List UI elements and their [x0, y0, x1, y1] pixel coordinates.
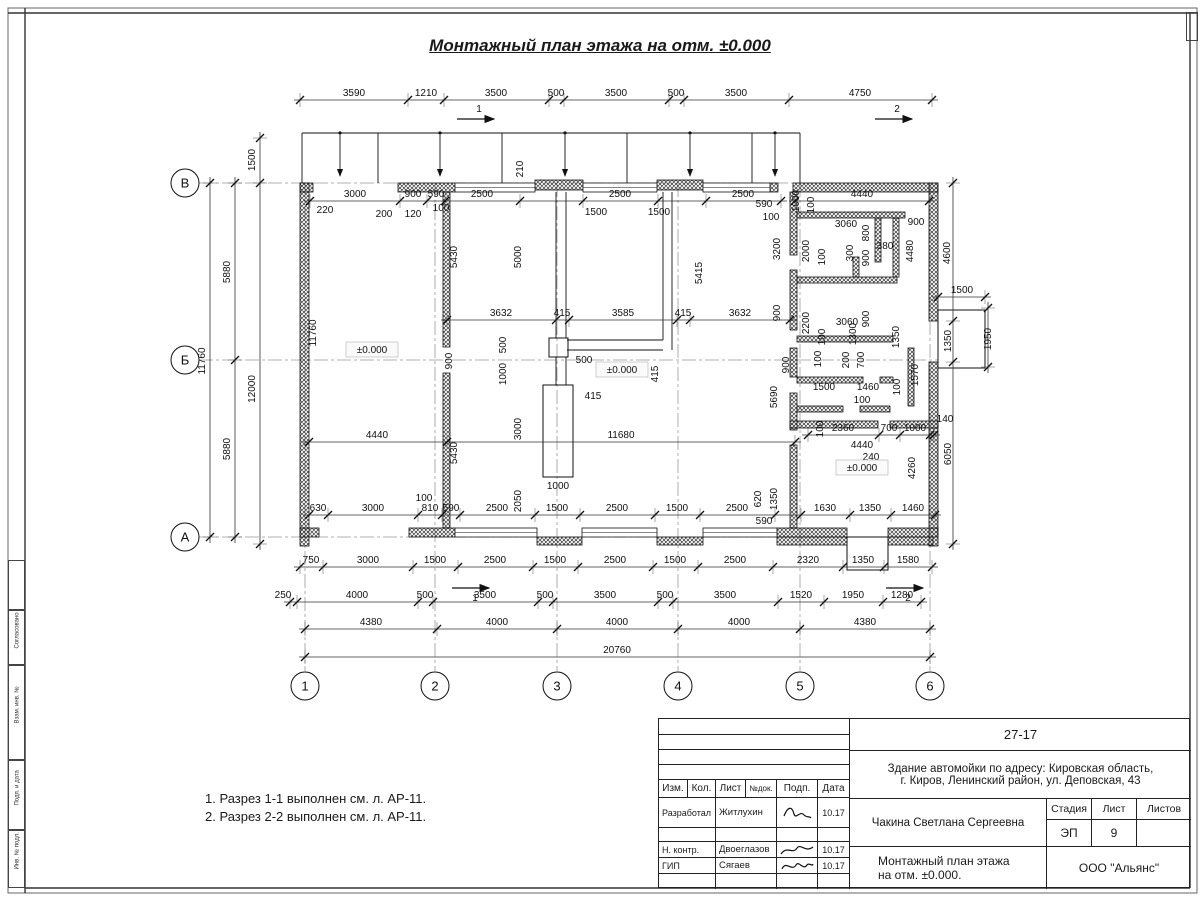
dim-label: 750	[303, 555, 320, 566]
dim-label: 3500	[474, 590, 497, 601]
tb-sheets-label: Листов	[1136, 798, 1191, 819]
axis-bubble-label: 6	[926, 679, 933, 694]
frame-strip-cell: Инв. № подл.	[8, 830, 25, 888]
dim-label: 1500	[247, 148, 258, 171]
dim-label: 11760	[308, 319, 319, 347]
elevation-label: ±0.000	[357, 345, 388, 356]
tb-company: ООО "Альянс"	[1046, 846, 1191, 889]
title-block-empty-cell	[659, 749, 849, 764]
dim-label: 20760	[603, 645, 631, 656]
dim-label: 100	[817, 248, 828, 265]
tb-col-data: Дата	[817, 779, 849, 797]
dim-label: 1520	[790, 590, 813, 601]
dim-label: 100	[813, 350, 824, 367]
dim-label: 500	[498, 336, 509, 353]
notes-block: 1. Разрез 1-1 выполнен см. л. АР-11. 2. …	[205, 790, 426, 825]
dim-label: 1630	[814, 503, 837, 514]
dim-label: 1210	[415, 88, 438, 99]
title-block-empty-cell	[817, 827, 849, 841]
dim-label: 500	[537, 590, 554, 601]
tb-drawing-name-line1: Монтажный план этажа	[878, 854, 1010, 868]
dim-label: 3632	[490, 308, 513, 319]
dim-label: 415	[554, 308, 571, 319]
tb-col-izm: Изм.	[659, 779, 687, 797]
dim-label: 500	[668, 88, 685, 99]
dim-label: 800	[861, 224, 872, 241]
dim-label: 1500	[666, 503, 689, 514]
dim-label: 415	[650, 365, 661, 382]
dim-label: 1000	[547, 481, 570, 492]
dim-label: 140	[937, 414, 954, 425]
tb-sheet-label: Лист	[1091, 798, 1136, 819]
dim-label: 1000	[904, 423, 927, 434]
drawing-sheet: 3590121035005003500500350047501212150021…	[0, 0, 1200, 900]
dim-label: 100	[763, 212, 780, 223]
tb-date: 10.17	[817, 797, 849, 827]
dim-label: 1500	[648, 207, 671, 218]
axis-bubble-label: 2	[431, 679, 438, 694]
tb-signature	[776, 797, 817, 827]
dim-label: 590	[443, 503, 460, 514]
dim-label: 500	[657, 590, 674, 601]
frame-strip-cell: Взам. инв. №	[8, 665, 25, 760]
dim-label: 4440	[366, 430, 389, 441]
dimension-labels: 3590121035005003500500350047501212150021…	[197, 88, 994, 656]
dim-label: 1500	[424, 555, 447, 566]
dim-label: 5430	[449, 441, 460, 464]
axis-bubble-label: 5	[796, 679, 803, 694]
dim-label: 2320	[797, 555, 820, 566]
dim-label: 5415	[694, 261, 705, 284]
dim-label: 2050	[513, 489, 524, 512]
dim-label: 1500	[813, 382, 836, 393]
dim-label: 5430	[449, 245, 460, 268]
tb-drawing-name: Монтажный план этажа на отм. ±0.000.	[849, 846, 1046, 889]
frame-strip-label: Взам. инв. №	[15, 708, 21, 723]
dim-label: 4480	[905, 239, 916, 262]
dim-label: 1950	[983, 327, 994, 350]
title-block-empty-cell	[776, 827, 817, 841]
dim-label: 1500	[546, 503, 569, 514]
frame-strip-cell	[8, 560, 25, 610]
dim-label: 1350	[852, 555, 875, 566]
tb-project-line1: Здание автомойки по адресу: Кировская об…	[888, 763, 1154, 775]
dim-label: 2500	[606, 503, 629, 514]
tb-doc-number: 27-17	[849, 719, 1191, 750]
dim-label: 4440	[851, 189, 874, 200]
dim-label: 900	[908, 217, 925, 228]
tb-date: 10.17	[817, 857, 849, 873]
dim-label: 4750	[849, 88, 872, 99]
dim-label: 100	[854, 395, 871, 406]
dim-label: 590	[428, 189, 445, 200]
dim-label: 1500	[585, 207, 608, 218]
dim-label: 4000	[606, 617, 629, 628]
dim-label: 3000	[357, 555, 380, 566]
title-block-empty-cell	[715, 827, 776, 841]
dim-label: 12000	[247, 375, 258, 403]
axis-bubble-label: В	[181, 176, 190, 191]
dim-label: 1500	[544, 555, 567, 566]
dim-label: 2500	[732, 189, 755, 200]
title-block: Изм. Кол. Лист №док. Подп. Дата Разработ…	[658, 718, 1190, 888]
dim-label: 900	[861, 310, 872, 327]
dim-label: 2500	[484, 555, 507, 566]
dim-label: 630	[310, 503, 327, 514]
dim-label: 1580	[897, 555, 920, 566]
dim-label: 6050	[943, 442, 954, 465]
dim-label: 3590	[343, 88, 366, 99]
dim-label: 4000	[728, 617, 751, 628]
dim-label: 200	[841, 351, 852, 368]
dim-label: 4600	[942, 241, 953, 264]
dim-label: 500	[417, 590, 434, 601]
dim-label: 2500	[726, 503, 749, 514]
dim-label: 700	[881, 423, 898, 434]
tb-sheets-value	[1136, 819, 1191, 846]
axis-bubbles: ВБА123456	[171, 169, 944, 700]
note-line: 2. Разрез 2-2 выполнен см. л. АР-11.	[205, 808, 426, 826]
dim-label: 1950	[842, 590, 865, 601]
dim-label: 100	[815, 420, 826, 437]
dim-label: 500	[548, 88, 565, 99]
dim-label: 900	[861, 249, 872, 266]
dim-label: 11680	[607, 430, 635, 441]
dim-label: 1000	[791, 189, 802, 212]
dim-label: 4440	[851, 440, 874, 451]
dim-label: 900	[405, 189, 422, 200]
tb-drawing-name-line2: на отм. ±0.000.	[878, 868, 961, 882]
frame-strip-label: Подп. и дата	[15, 791, 21, 806]
axis-bubble-label: 1	[301, 679, 308, 694]
dim-label: 590	[756, 199, 773, 210]
dim-label: 415	[585, 391, 602, 402]
dim-label: 3500	[485, 88, 508, 99]
dim-label: 4380	[360, 617, 383, 628]
dim-label: 100	[892, 378, 903, 395]
frame-strip-cell: Подп. и дата	[8, 760, 25, 830]
dim-label: 3585	[612, 308, 635, 319]
frame-strip-label: Согласовано	[15, 633, 21, 648]
dim-label: 250	[275, 590, 292, 601]
tb-author: Чакина Светлана Сергеевна	[849, 798, 1046, 846]
tb-col-list: Лист	[715, 779, 745, 797]
title-block-empty-cell	[659, 827, 715, 841]
frame-strip-label: Инв. № подл.	[15, 855, 21, 870]
dim-label: 3000	[344, 189, 367, 200]
tb-role: Разработал	[659, 797, 715, 827]
dim-label: 1460	[902, 503, 925, 514]
signature-glyph	[780, 802, 814, 824]
dim-label: 2500	[471, 189, 494, 200]
dim-label: 3500	[714, 590, 737, 601]
tb-stage-label: Стадия	[1046, 798, 1091, 819]
title-block-empty-cell	[659, 873, 715, 889]
dim-label: 5000	[513, 245, 524, 268]
elevation-label: ±0.000	[847, 463, 878, 474]
dim-label: 1570	[910, 363, 921, 386]
dim-label: 300	[845, 244, 856, 261]
dim-label: 415	[675, 308, 692, 319]
tb-name: Житлухин	[715, 797, 776, 827]
dim-label: 220	[317, 205, 334, 216]
tb-signature	[776, 841, 817, 857]
dim-label: 1500	[951, 285, 974, 296]
dim-label: 1280	[891, 590, 914, 601]
dim-label: 1000	[498, 362, 509, 385]
title-block-empty-cell	[659, 764, 849, 779]
title-block-empty-cell	[776, 873, 817, 889]
title-block-empty-cell	[817, 873, 849, 889]
tb-stage-value: ЭП	[1046, 819, 1091, 846]
dim-label: 4260	[907, 456, 918, 479]
elevation-label: ±0.000	[607, 365, 638, 376]
tb-date: 10.17	[817, 841, 849, 857]
dimension-lines	[203, 93, 995, 664]
tb-name: Сягаев	[715, 857, 776, 873]
tb-col-podp: Подп.	[776, 779, 817, 797]
dim-label: 3000	[362, 503, 385, 514]
dim-label: 3060	[836, 317, 859, 328]
dim-label: 4380	[854, 617, 877, 628]
dim-label: 100	[817, 328, 828, 345]
dim-label: 1350	[943, 329, 954, 352]
dim-label: 4000	[486, 617, 509, 628]
dim-label: 3500	[605, 88, 628, 99]
dim-label: 120	[405, 209, 422, 220]
dim-label: 2360	[832, 423, 855, 434]
dim-label: 2500	[724, 555, 747, 566]
tb-project-line2: г. Киров, Ленинский район, ул. Деповская…	[900, 775, 1140, 787]
title-block-empty-cell	[659, 734, 849, 749]
dim-label: 2000	[801, 239, 812, 262]
dim-label: 3632	[729, 308, 752, 319]
signature-glyph	[779, 843, 815, 857]
dim-label: 380	[877, 241, 894, 252]
dim-label: 3500	[725, 88, 748, 99]
dim-label: 900	[444, 352, 455, 369]
dim-label: 500	[576, 355, 593, 366]
dim-label: 810	[422, 503, 439, 514]
corner-stamp-box	[1186, 12, 1198, 41]
dim-label: 100	[433, 203, 450, 214]
dim-label: 1350	[859, 503, 882, 514]
axis-bubble-label: Б	[181, 353, 190, 368]
signature-glyph	[779, 859, 815, 873]
axis-bubble-label: 4	[674, 679, 681, 694]
tb-role: Н. контр.	[659, 841, 715, 857]
axis-bubble-label: А	[181, 530, 190, 545]
dim-label: 4000	[346, 590, 369, 601]
axis-bubble-label: 3	[553, 679, 560, 694]
dim-label: 2	[894, 104, 900, 115]
note-line: 1. Разрез 1-1 выполнен см. л. АР-11.	[205, 790, 426, 808]
tb-col-doc: №док.	[745, 779, 776, 797]
page-title: Монтажный план этажа на отм. ±0.000	[300, 36, 900, 56]
dim-label: 1350	[891, 325, 902, 348]
dim-label: 700	[856, 351, 867, 368]
dim-label: 900	[772, 304, 783, 321]
tb-project: Здание автомойки по адресу: Кировская об…	[849, 750, 1191, 798]
dim-label: 1350	[769, 487, 780, 510]
dim-label: 3000	[513, 417, 524, 440]
tb-sheet-value: 9	[1091, 819, 1136, 846]
dim-label: 3200	[772, 237, 783, 260]
dim-label: 1460	[857, 382, 880, 393]
dim-label: 1500	[664, 555, 687, 566]
dim-label: 1	[476, 104, 482, 115]
dim-label: 5690	[769, 385, 780, 408]
dim-label: 100	[806, 196, 817, 213]
dim-label: 5880	[222, 437, 233, 460]
dim-label: 3500	[594, 590, 617, 601]
frame-strip-cell: Согласовано	[8, 610, 25, 665]
title-block-empty-cell	[659, 719, 849, 734]
dim-label: 620	[753, 490, 764, 507]
tb-role: ГИП	[659, 857, 715, 873]
dim-label: 3060	[835, 219, 858, 230]
tb-signature	[776, 857, 817, 873]
dim-label: 200	[376, 209, 393, 220]
dim-label: 900	[781, 356, 792, 373]
dim-label: 2500	[609, 189, 632, 200]
tb-col-kol: Кол.	[687, 779, 715, 797]
dim-label: 590	[756, 516, 773, 527]
title-block-empty-cell	[715, 873, 776, 889]
tb-name: Двоеглазов	[715, 841, 776, 857]
dim-label: 210	[515, 160, 526, 177]
dim-label: 2500	[486, 503, 509, 514]
dim-label: 2500	[604, 555, 627, 566]
dim-label: 5880	[222, 260, 233, 283]
dim-label: 2200	[801, 311, 812, 334]
